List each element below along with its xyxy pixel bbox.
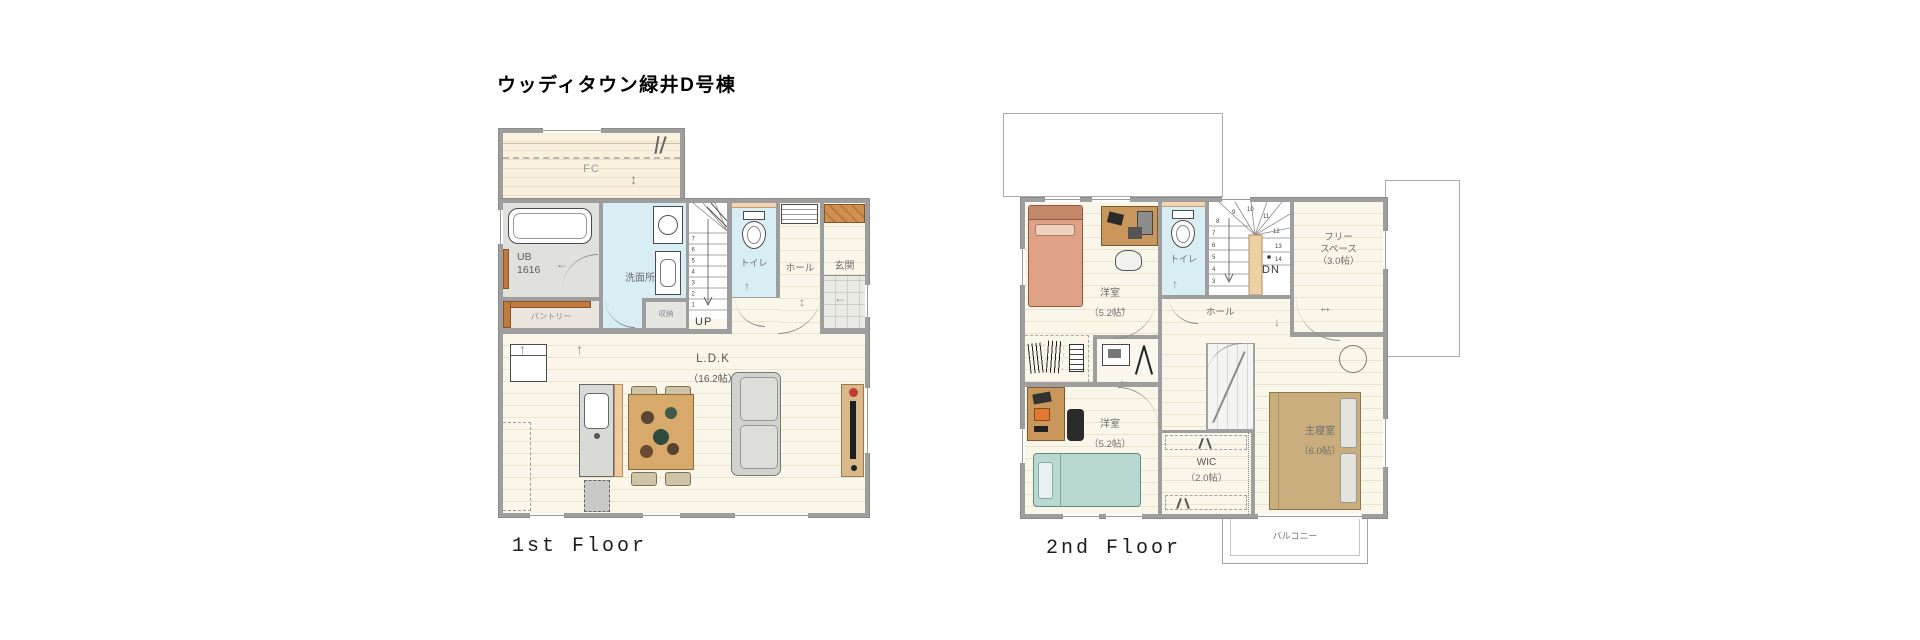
printer-icon [1108, 349, 1121, 358]
room-toilet-2f: トイレ [1162, 202, 1205, 295]
plan-title: ウッディタウン緑井D号棟 [497, 70, 736, 97]
hall-2f-label: ホール [1206, 307, 1235, 319]
bathtub-inner [513, 213, 587, 239]
ub-size-text: 1616 [517, 264, 540, 276]
window-marker [865, 388, 870, 453]
window-marker [1092, 197, 1130, 202]
toilet-shelf [1162, 202, 1205, 207]
dining-chair-icon [665, 472, 691, 486]
direction-arrow: ↓ [1274, 316, 1280, 328]
bedroom2-size-text: （5.2帖） [1089, 439, 1131, 450]
storage-label: 収納 [646, 309, 686, 318]
direction-arrow: ← [834, 292, 846, 304]
free-space-size: （3.0帖） [1318, 256, 1360, 267]
master-text: 主寝室 [1305, 426, 1335, 437]
ldk-text: L.D.K [696, 353, 730, 365]
wic-label: WIC [1162, 457, 1251, 470]
tableware [665, 407, 677, 419]
floor2-main-block: 洋室 （5.2帖） [1020, 197, 1388, 519]
laptop-icon [1107, 211, 1124, 225]
toilet-bowl-icon [1171, 220, 1195, 248]
roof-outline [1385, 180, 1460, 357]
bed-icon [1033, 453, 1141, 507]
hanging-clothes-icon [1027, 342, 1046, 374]
fridge-door-line [511, 355, 546, 356]
room-pantry: パントリー [503, 301, 599, 328]
pillow [1038, 462, 1053, 499]
window-marker [1045, 197, 1080, 202]
svg-text:7: 7 [692, 237, 696, 243]
balcony-door-marker [1258, 514, 1362, 519]
toilet-bowl-inner [1176, 225, 1190, 243]
toilet-shelf [732, 203, 776, 208]
window-marker [543, 128, 601, 133]
wic-size-label: （2.0帖） [1162, 473, 1251, 485]
hanger-icon [1206, 438, 1212, 449]
chair-icon [1115, 250, 1142, 271]
fc-line [503, 143, 680, 144]
direction-arrow: ← [556, 258, 568, 270]
direction-arrow: ↑ [744, 280, 750, 292]
direction-arrow: ↕ [799, 296, 805, 308]
window-marker [643, 513, 680, 518]
entrance-door-marker [865, 285, 870, 317]
master-size-text: （6.0帖） [1299, 446, 1341, 457]
hanger-icon [1198, 438, 1204, 449]
dresser-icon [1069, 344, 1084, 372]
toilet-bowl-icon [742, 221, 766, 249]
washroom-label: 洗面所 [625, 273, 655, 286]
svg-text:6: 6 [1212, 243, 1216, 249]
pantry-label: パントリー [503, 312, 599, 322]
window-marker [1383, 231, 1388, 269]
counter-wood-panel [614, 384, 623, 477]
room-wic: WIC （2.0帖） [1162, 433, 1251, 514]
room-master-bedroom: 主寝室 （6.0帖） [1255, 337, 1383, 514]
fridge-icon [510, 344, 547, 382]
bath-cabinet-icon [503, 249, 509, 289]
up-label: UP [695, 316, 712, 330]
toilet-2f-label: トイレ [1162, 254, 1205, 265]
pillow [1035, 224, 1075, 236]
direction-arrow: ↑ [1172, 278, 1178, 290]
floorplan-canvas: ウッディタウン緑井D号棟 FC UB 1616 パント [0, 0, 1920, 640]
bedroom2-text: 洋室 [1100, 419, 1120, 430]
window-marker [530, 513, 564, 518]
toilet-tank-icon [1172, 210, 1194, 219]
pillow [1340, 453, 1357, 503]
svg-text:8: 8 [1216, 219, 1220, 225]
window-marker [1106, 514, 1142, 519]
open-closet [1025, 335, 1089, 382]
wic-hanger-rail [1165, 495, 1247, 510]
keyboard-icon [1034, 426, 1048, 432]
easel-icon [1143, 345, 1153, 374]
svg-text:14: 14 [1275, 257, 1282, 263]
free-space-label: フリー スペース （3.0帖） [1294, 232, 1383, 268]
floor1-fc-block: FC [498, 128, 685, 204]
svg-text:5: 5 [1212, 255, 1216, 261]
direction-arrow: ↑ [576, 342, 583, 356]
room-bedroom1: 洋室 （5.2帖） [1025, 202, 1158, 382]
ub-text: UB [517, 251, 532, 263]
svg-text:13: 13 [1275, 244, 1282, 250]
wic-partition-line [1248, 433, 1251, 514]
monitor-icon [1128, 227, 1142, 239]
toilet-1f-label: トイレ [732, 258, 776, 269]
svg-text:11: 11 [1263, 214, 1270, 220]
window-marker [735, 513, 808, 518]
wic-hanger-rail [1165, 435, 1247, 450]
round-table-icon [1339, 345, 1367, 373]
roof-vent-icon [659, 136, 666, 154]
room-toilet-1f: トイレ [732, 203, 776, 297]
desk-icon [1101, 206, 1158, 246]
sofa-cushion [740, 377, 778, 421]
reserved-zone-dashed [503, 422, 531, 511]
svg-text:2: 2 [692, 292, 696, 298]
window-marker [1020, 249, 1025, 285]
dining-table-icon [628, 394, 694, 470]
hall-1f-label: ホール [780, 263, 820, 275]
washer-drum [658, 215, 678, 235]
room-ldk: L.D.K （16.2帖） [503, 334, 865, 513]
room-storage: 収納 [642, 298, 686, 328]
flower-icon [849, 388, 858, 397]
hanger-icon [1176, 498, 1182, 509]
tableware [653, 429, 669, 445]
tableware [641, 411, 654, 424]
svg-text:5: 5 [692, 259, 696, 265]
kitchen-sink-icon [584, 393, 609, 429]
svg-text:9: 9 [1232, 210, 1236, 216]
vanity-sink [660, 259, 676, 287]
desk-icon [1027, 387, 1065, 441]
kitchen-counter-icon [579, 384, 614, 477]
window-marker [1063, 514, 1099, 519]
printer-desk-icon [1102, 344, 1130, 366]
free-space-line1: フリー [1324, 232, 1353, 243]
floor1-main-block: UB 1616 パントリー 洗面所 収納 [498, 198, 870, 518]
window-marker [1222, 197, 1250, 202]
direction-arrow: ← [1118, 374, 1130, 386]
bed-headboard [1029, 206, 1082, 220]
free-space-line2: スペース [1320, 244, 1357, 255]
tableware [640, 445, 653, 458]
window-marker [1020, 429, 1025, 463]
ub-label: UB 1616 [517, 251, 540, 277]
tv-board-icon [841, 384, 864, 477]
svg-text:12: 12 [1273, 229, 1280, 235]
master-label: 主寝室 （6.0帖） [1275, 420, 1365, 460]
direction-arrow: ↔ [1114, 300, 1128, 314]
staircase-1f: 7 6 5 4 3 2 1 [689, 203, 727, 319]
svg-text:10: 10 [1247, 207, 1254, 213]
room-entrance: 玄関 [824, 203, 865, 328]
fc-dashed-line [503, 157, 680, 159]
hanger-icon [1184, 498, 1190, 509]
window-marker [498, 210, 503, 244]
svg-text:3: 3 [1212, 279, 1216, 285]
direction-arrow: ↔ [1318, 300, 1332, 314]
bathtub-icon [508, 208, 592, 244]
roof-outline [1003, 113, 1223, 197]
staircase-1f-drawing: 7 6 5 4 3 2 1 [689, 203, 727, 319]
floor2-caption: 2nd Floor [1046, 537, 1181, 560]
staircase-2f-drawing: 8 7 6 5 4 3 9 10 11 12 13 14 [1209, 202, 1290, 295]
tv-icon [850, 401, 856, 459]
balcony-label: バルコニー [1223, 531, 1367, 542]
direction-arrow: ↕ [630, 172, 637, 186]
svg-text:4: 4 [1212, 267, 1216, 273]
dn-label: DN [1253, 264, 1289, 278]
dining-chair-icon [631, 472, 657, 486]
shoe-cabinet-icon [781, 204, 818, 224]
svg-text:6: 6 [692, 248, 696, 254]
desk-accessory [1034, 408, 1050, 421]
blanket-line [1060, 454, 1061, 506]
appliance-space-icon [584, 480, 610, 512]
svg-text:4: 4 [692, 270, 696, 276]
monitor-icon [1032, 392, 1051, 405]
pantry-shelf-icon [503, 301, 591, 308]
tableware [667, 443, 679, 455]
window-marker [1383, 419, 1388, 467]
washing-machine-icon [653, 206, 683, 244]
corridor [1162, 343, 1206, 430]
svg-text:7: 7 [1212, 231, 1216, 237]
floor1-caption: 1st Floor [512, 535, 647, 558]
entrance-label: 玄関 [824, 261, 865, 274]
svg-text:3: 3 [692, 281, 696, 287]
balcony: バルコニー [1222, 514, 1368, 564]
toilet-tank-icon [743, 211, 765, 220]
staircase-2f: 8 7 6 5 4 3 9 10 11 12 13 14 DN [1209, 202, 1290, 295]
sofa-cushion [740, 425, 778, 469]
faucet-icon [594, 433, 600, 439]
hanging-clothes-icon [1046, 340, 1064, 373]
sofa-icon [731, 372, 781, 476]
speaker-icon [851, 465, 857, 471]
fc-label: FC [503, 163, 680, 177]
svg-text:1: 1 [692, 303, 696, 309]
room-fc: FC [503, 133, 680, 198]
vanity-icon [655, 251, 681, 295]
toilet-bowl-inner [747, 226, 761, 244]
entrance-closet-icon [824, 204, 865, 223]
direction-arrow: ↑ [519, 342, 526, 356]
